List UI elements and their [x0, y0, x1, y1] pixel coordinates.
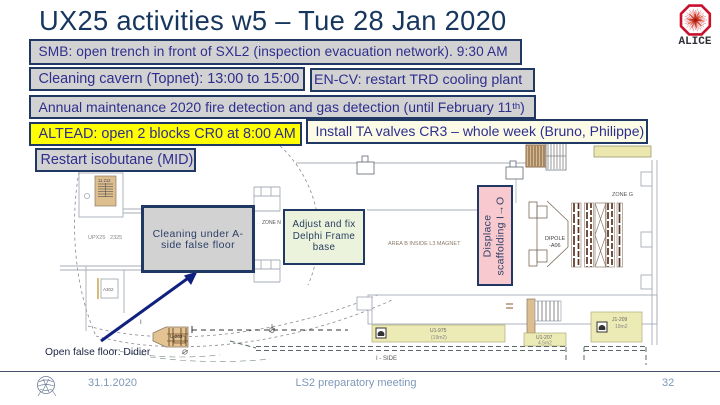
svg-text:ZONE N: ZONE N: [262, 220, 281, 226]
svg-text:I - SIDE: I - SIDE: [376, 356, 397, 362]
svg-text:AREA B INSIDE L3 MAGNET: AREA B INSIDE L3 MAGNET: [388, 241, 461, 247]
svg-text:19m2: 19m2: [615, 324, 628, 330]
svg-text:U1-975: U1-975: [430, 328, 447, 334]
svg-text:11 212: 11 212: [98, 178, 111, 183]
svg-text:(19m2): (19m2): [431, 335, 447, 341]
svg-text:ZONE G: ZONE G: [612, 192, 633, 198]
svg-text:DIPOLE: DIPOLE: [545, 236, 566, 242]
svg-text:4.5m2: 4.5m2: [538, 341, 552, 347]
svg-text:A302: A302: [103, 287, 114, 292]
svg-text:-A06: -A06: [549, 243, 561, 249]
svg-text:I: I: [140, 320, 142, 326]
svg-text:U-203: U-203: [170, 334, 183, 339]
svg-text:J1-209: J1-209: [612, 317, 628, 323]
svg-text:UPX25 2325: UPX25 2325: [88, 235, 122, 241]
